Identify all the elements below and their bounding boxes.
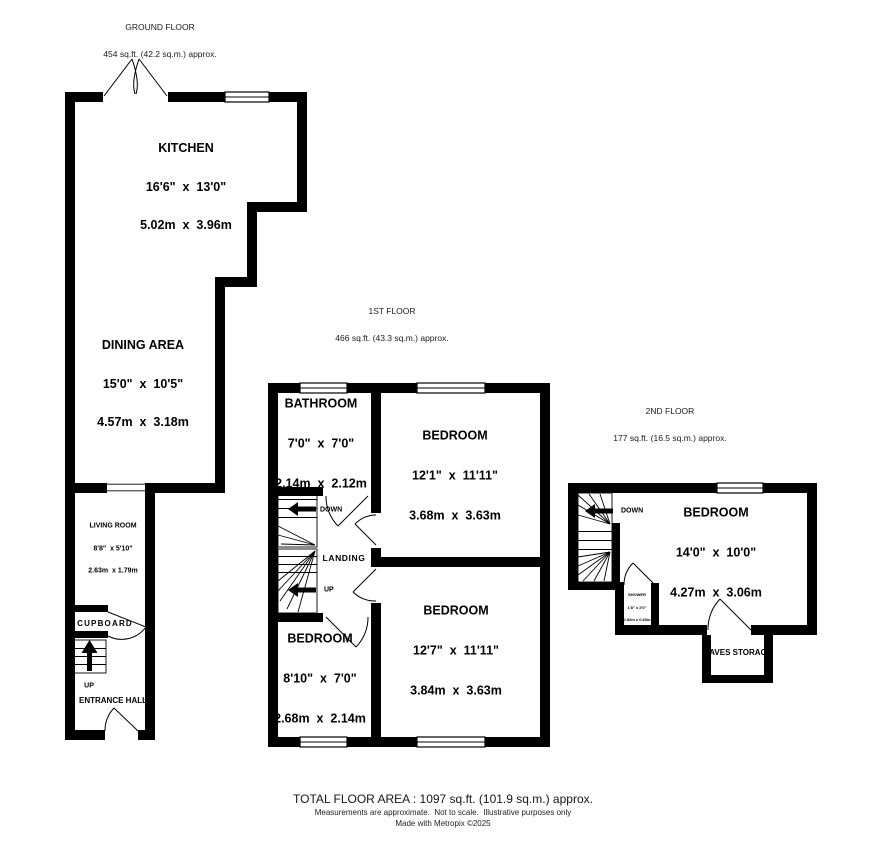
room-label-cupboard: CUPBOARD: [77, 620, 133, 628]
floorplan-page: GROUND FLOOR 454 sq.ft. (42.2 sq.m.) app…: [0, 0, 886, 863]
first-floor-header: 1ST FLOOR 466 sq.ft. (43.3 sq.m.) approx…: [335, 290, 448, 360]
room-name: BEDROOM: [274, 632, 366, 647]
wall: [247, 202, 257, 287]
room-label-eaves-storage: EAVES STORAGE: [704, 649, 772, 657]
room-label-dining: DINING AREA 15'0" x 10'5" 4.57m x 3.18m: [97, 314, 189, 455]
room-dim-metric: 2.63m x 1.79m: [88, 567, 137, 576]
wall: [65, 631, 108, 638]
room-label-shower: SHOWER 1'8" x 2'0" 0.52m x 0.60m: [623, 585, 650, 631]
staircase-second: [578, 493, 613, 582]
room-dim-metric: 4.27m x 3.06m: [670, 586, 762, 601]
room-dim-metric: 5.02m x 3.96m: [140, 219, 232, 233]
floor-area: 454 sq.ft. (42.2 sq.m.) approx.: [103, 50, 216, 60]
staircase-up: [278, 549, 317, 613]
down-arrow: [594, 509, 613, 514]
room-dim-metric: 0.52m x 0.60m: [623, 618, 650, 623]
winder-line: [278, 535, 315, 545]
up-arrow-head: [82, 640, 98, 653]
room-name: BEDROOM: [670, 506, 762, 521]
room-label-bedroom-3: BEDROOM 8'10" x 7'0" 2.68m x 2.14m: [274, 607, 366, 752]
room-label-living: LIVING ROOM 8'8" x 5'10" 2.63m x 1.79m: [88, 508, 137, 590]
door-swing: [624, 563, 655, 585]
room-label-bathroom: BATHROOM 7'0" x 7'0" 2.14m x 2.12m: [275, 372, 367, 517]
room-label-bedroom-top: BEDROOM 14'0" x 10'0" 4.27m x 3.06m: [670, 481, 762, 626]
wall: [702, 675, 773, 683]
ground-floor-header: GROUND FLOOR 454 sq.ft. (42.2 sq.m.) app…: [103, 6, 216, 76]
room-dim-imperial: 8'10" x 7'0": [274, 672, 366, 687]
floor-title: 1ST FLOOR: [335, 307, 448, 317]
room-dim-metric: 2.14m x 2.12m: [275, 477, 367, 492]
wall: [65, 483, 107, 493]
wall: [215, 277, 225, 493]
room-name: BEDROOM: [410, 604, 502, 619]
room-dim-imperial: 12'1" x 11'11": [409, 469, 501, 484]
wall: [485, 383, 550, 393]
wall: [371, 603, 381, 747]
wall: [65, 730, 105, 740]
floor-area: 466 sq.ft. (43.3 sq.m.) approx.: [335, 334, 448, 344]
total-floor-area: TOTAL FLOOR AREA : 1097 sq.ft. (101.9 sq…: [293, 793, 593, 805]
credit-text: Made with Metropix ©2025: [395, 820, 490, 828]
room-dim-imperial: 7'0" x 7'0": [275, 437, 367, 452]
room-dim-metric: 4.57m x 3.18m: [97, 416, 189, 430]
staircase-ground: [73, 640, 106, 673]
wall: [297, 92, 307, 212]
disclaimer-text: Measurements are approximate. Not to sca…: [315, 809, 572, 817]
floor-title: 2ND FLOOR: [613, 407, 726, 417]
wall: [138, 730, 155, 740]
door-swing: [105, 708, 138, 731]
up-arrow: [297, 588, 316, 593]
floor-title: GROUND FLOOR: [103, 23, 216, 33]
wall: [381, 557, 540, 567]
winder-line: [278, 551, 315, 581]
up-arrow: [87, 651, 92, 671]
wall: [568, 483, 578, 590]
room-dim-imperial: 1'8" x 2'0": [623, 606, 650, 611]
room-label-bedroom-2: BEDROOM 12'7" x 11'11" 3.84m x 3.63m: [410, 579, 502, 724]
room-dim-imperial: 8'8" x 5'10": [88, 545, 137, 554]
room-label-kitchen: KITCHEN 16'6" x 13'0" 5.02m x 3.96m: [140, 117, 232, 258]
window: [417, 383, 485, 393]
wall: [540, 383, 550, 747]
room-dim-imperial: 14'0" x 10'0": [670, 546, 762, 561]
wall: [612, 523, 620, 585]
up-arrow-head: [288, 583, 298, 597]
floor-area: 177 sq.ft. (16.5 sq.m.) approx.: [613, 434, 726, 444]
wall: [65, 92, 103, 102]
winder-line: [278, 526, 315, 545]
window: [417, 737, 485, 747]
room-dim-metric: 2.68m x 2.14m: [274, 712, 366, 727]
wall: [65, 92, 75, 740]
wall: [168, 92, 225, 102]
winder-line: [281, 544, 315, 545]
window: [225, 92, 269, 102]
winder-line: [604, 552, 610, 581]
room-name: DINING AREA: [97, 339, 189, 353]
room-name: SHOWER: [623, 593, 650, 598]
wall: [371, 548, 381, 567]
door-swing: [353, 569, 376, 601]
wall: [485, 737, 550, 747]
room-name: BEDROOM: [409, 429, 501, 444]
room-name: BATHROOM: [275, 397, 367, 412]
wall: [807, 483, 817, 635]
room-dim-metric: 3.68m x 3.63m: [409, 509, 501, 524]
door-swing: [355, 515, 376, 545]
wall: [148, 483, 225, 493]
room-label-entrance-hall: ENTRANCE HALL: [79, 697, 147, 705]
room-label-landing: LANDING: [323, 554, 366, 563]
stair-direction-label: UP: [324, 587, 334, 594]
room-name: KITCHEN: [140, 142, 232, 156]
room-label-bedroom-1: BEDROOM 12'1" x 11'11" 3.68m x 3.63m: [409, 404, 501, 549]
wall: [65, 605, 108, 612]
open-doorway: [107, 484, 148, 491]
room-dim-imperial: 15'0" x 10'5": [97, 377, 189, 391]
second-floor-header: 2ND FLOOR 177 sq.ft. (16.5 sq.m.) approx…: [613, 390, 726, 460]
stair-direction-label: DOWN: [320, 507, 342, 514]
stair-direction-label: DOWN: [621, 508, 643, 515]
wall: [751, 625, 817, 635]
room-dim-imperial: 16'6" x 13'0": [140, 180, 232, 194]
room-dim-imperial: 12'7" x 11'11": [410, 644, 502, 659]
stair-direction-label: UP: [84, 683, 94, 690]
wall: [371, 383, 381, 513]
room-name: LIVING ROOM: [88, 522, 137, 531]
room-dim-metric: 3.84m x 3.63m: [410, 684, 502, 699]
